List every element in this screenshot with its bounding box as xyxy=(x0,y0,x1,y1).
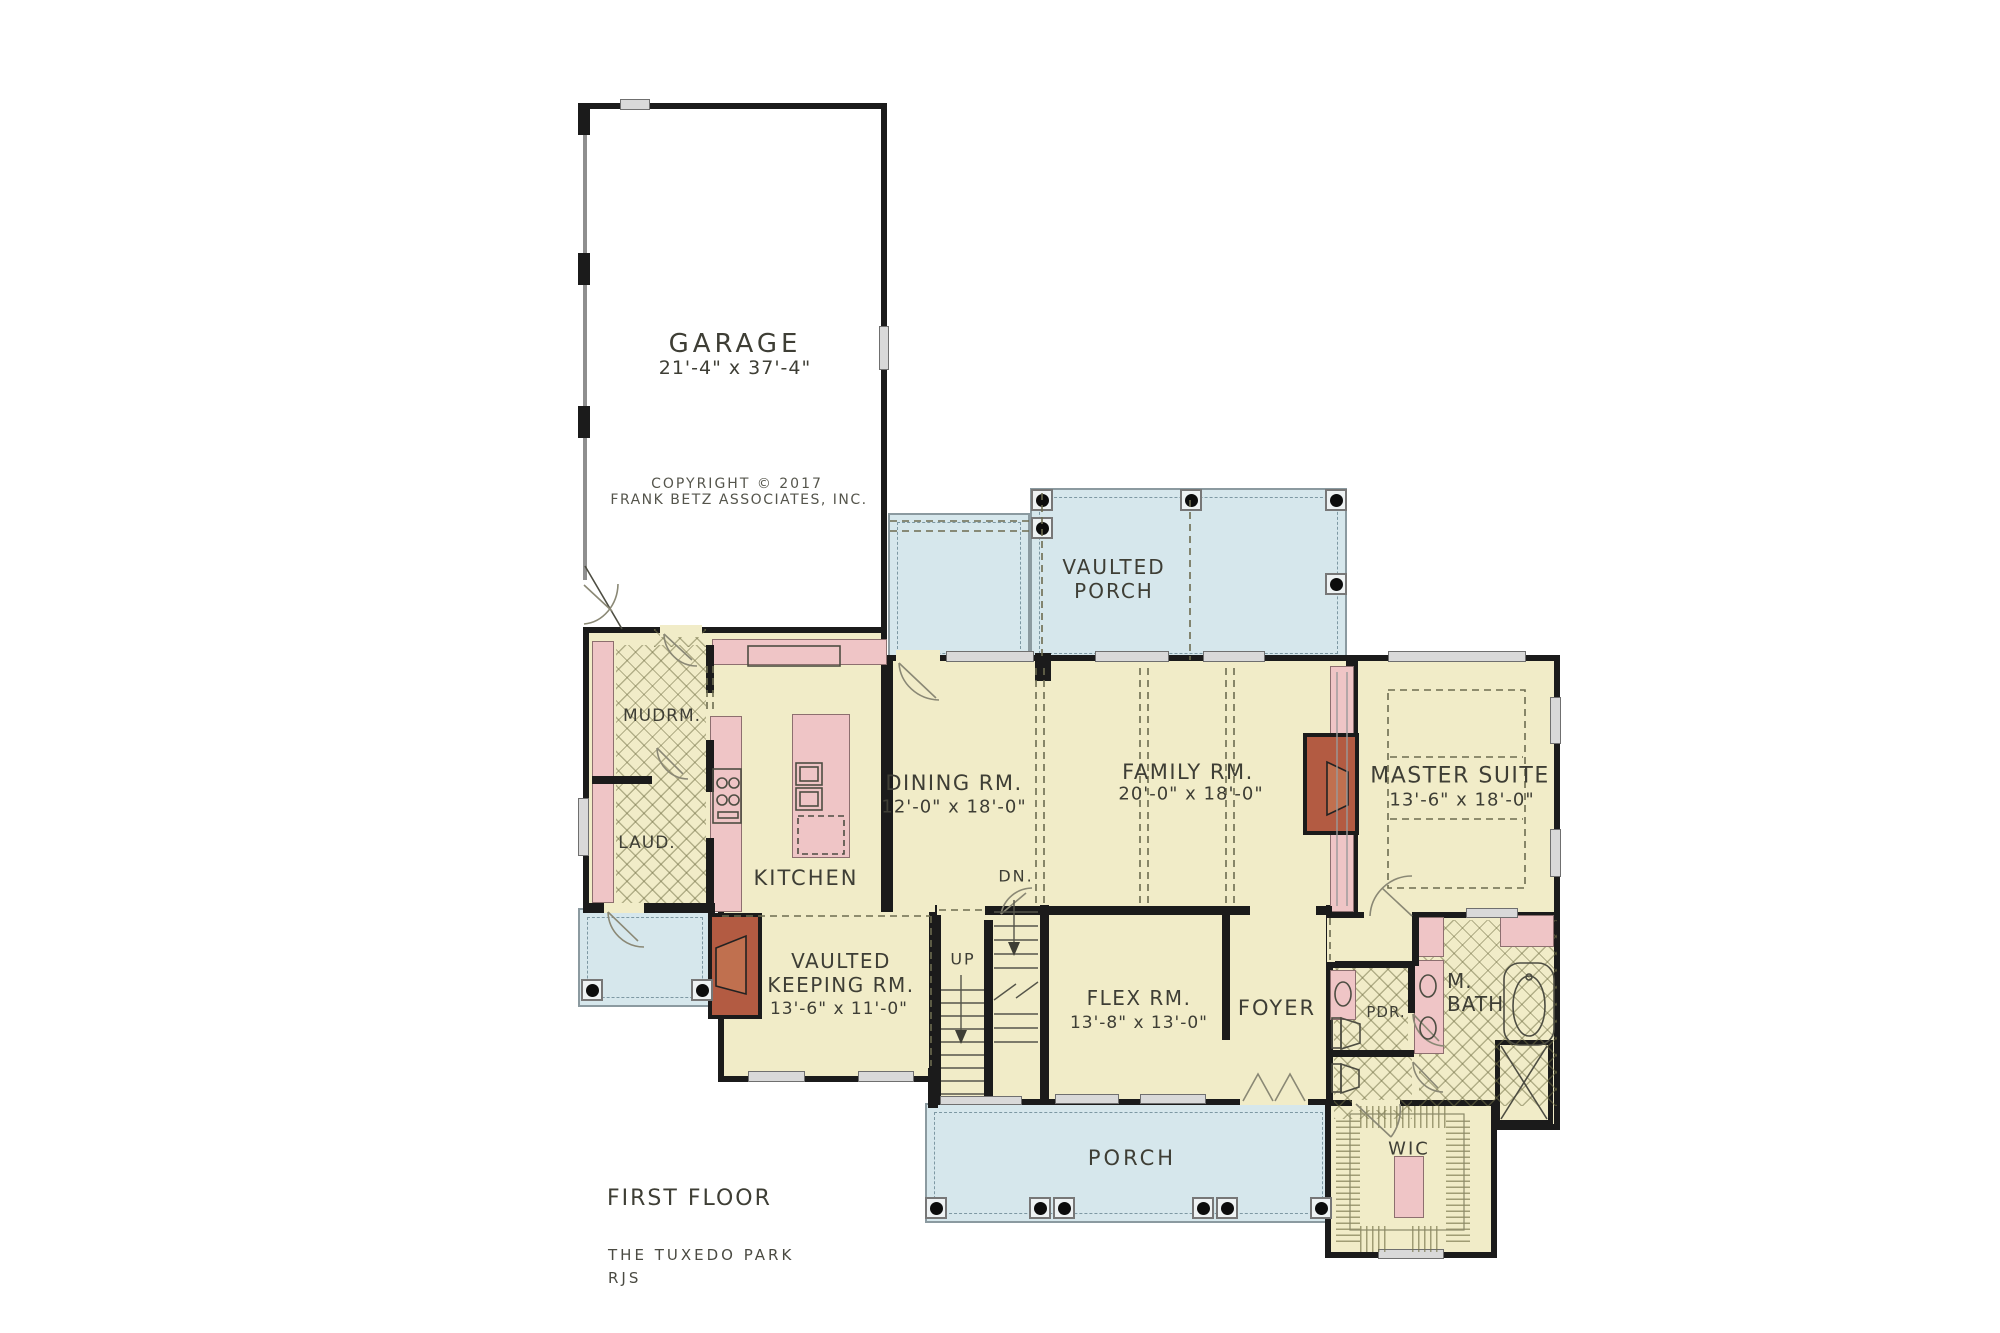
master-bath-label-line2: BATH xyxy=(1447,993,1504,1016)
window xyxy=(1550,697,1561,744)
bath-vanity-top-right xyxy=(1500,915,1554,947)
closet-rod-hatch xyxy=(1446,1116,1470,1242)
porch-column xyxy=(925,1197,947,1219)
wic-label: WIC xyxy=(1388,1139,1430,1160)
first-floor-label: FIRST FLOOR xyxy=(607,1186,772,1211)
vaulted-porch-label-line2: PORCH xyxy=(1074,579,1154,603)
window xyxy=(1055,1094,1119,1104)
porch-column xyxy=(691,979,713,1001)
porch-column xyxy=(1180,489,1202,511)
door-opening xyxy=(660,625,702,637)
copyright-line1: COPYRIGHT © 2017 xyxy=(651,476,823,492)
window xyxy=(578,798,589,856)
powder-label: PDR. xyxy=(1366,1003,1405,1021)
closet-rod-hatch xyxy=(1336,1116,1360,1242)
closet-rod-hatch xyxy=(1360,1106,1446,1128)
master-suite-label: MASTER SUITE xyxy=(1370,764,1550,789)
cased-opening xyxy=(1327,918,1335,962)
wall-segment xyxy=(1040,905,1049,1105)
closet-rod-hatch xyxy=(1412,1226,1440,1252)
porch-column xyxy=(581,979,603,1001)
keeping-dims: 13'-6" x 11'-0" xyxy=(770,999,908,1019)
dining-label: DINING RM. xyxy=(885,771,1022,795)
wall-segment xyxy=(1035,653,1051,681)
garage-left-wall-segment xyxy=(578,253,590,285)
wall-segment xyxy=(1222,912,1230,1040)
porch-column xyxy=(1325,489,1347,511)
window xyxy=(879,326,889,370)
kitchen-label: KITCHEN xyxy=(754,866,859,890)
wall-segment xyxy=(583,903,715,913)
window xyxy=(1095,651,1169,662)
kitchen-left-counter xyxy=(710,716,742,912)
porch-dashed-border xyxy=(587,917,703,998)
keeping-label-line2: KEEPING RM. xyxy=(767,973,914,997)
wic-island xyxy=(1394,1156,1424,1218)
wall-segment xyxy=(592,776,652,784)
window xyxy=(748,1071,805,1082)
master-bath-label: M. BATH xyxy=(1447,970,1504,1016)
family-dims: 20'-0" x 18'-0" xyxy=(1118,784,1263,805)
window xyxy=(620,99,650,110)
window xyxy=(1466,908,1518,918)
kitchen-island xyxy=(792,714,850,858)
window xyxy=(1203,651,1265,662)
master-bath-label-line1: M. xyxy=(1447,970,1504,993)
door-opening xyxy=(896,650,940,662)
porch-column xyxy=(1031,517,1053,539)
porch-column xyxy=(1031,489,1053,511)
foyer-label: FOYER xyxy=(1238,996,1316,1020)
front-door-opening xyxy=(1240,1094,1308,1105)
window xyxy=(1140,1094,1206,1104)
drafter-initials-label: RJS xyxy=(608,1269,641,1287)
wall-segment xyxy=(706,838,714,912)
dining-dims: 12'-0" x 18'-0" xyxy=(881,797,1026,818)
porch-dashed-border xyxy=(897,522,1021,654)
window xyxy=(946,651,1034,662)
left-wall-band xyxy=(592,641,614,903)
wall-segment xyxy=(1332,961,1414,968)
family-label: FAMILY RM. xyxy=(1122,760,1254,784)
mudroom-hall-tile-floor xyxy=(616,645,706,905)
porch-column xyxy=(1325,573,1347,595)
wall-segment xyxy=(1408,961,1415,1013)
family-room-fireplace xyxy=(1303,733,1359,835)
garage-door-opening xyxy=(579,580,591,627)
laundry-label: LAUD. xyxy=(618,833,675,853)
wall-segment xyxy=(984,920,993,1102)
floor-plan-canvas: GARAGE 21'-4" x 37'-4" COPYRIGHT © 2017 … xyxy=(0,0,2000,1333)
vaulted-porch-label-line1: VAULTED xyxy=(1062,555,1165,579)
bath-vanity xyxy=(1414,960,1444,1054)
garage-left-wall-segment xyxy=(578,103,590,135)
mudroom-label: MUDRM. xyxy=(623,706,701,726)
window xyxy=(1388,651,1526,662)
wall-segment xyxy=(1412,916,1419,966)
porch-column xyxy=(1029,1197,1051,1219)
keeping-room-fireplace xyxy=(708,913,762,1019)
closet-rod-hatch xyxy=(1360,1226,1388,1252)
wall-segment xyxy=(706,645,714,693)
flex-label: FLEX RM. xyxy=(1087,986,1192,1010)
wall-segment xyxy=(706,740,714,792)
window xyxy=(858,1071,914,1082)
window xyxy=(940,1096,1022,1105)
powder-sink-cabinet xyxy=(1330,970,1356,1020)
stairs-up-label: UP xyxy=(950,950,975,969)
porch-label: PORCH xyxy=(1088,1146,1176,1170)
plan-name-label: THE TUXEDO PARK xyxy=(608,1246,794,1264)
door-opening xyxy=(604,903,644,913)
door-opening xyxy=(1364,909,1412,921)
porch-column xyxy=(1216,1197,1238,1219)
keeping-label-line1: VAULTED xyxy=(791,949,891,973)
flex-dims: 13'-8" x 13'-0" xyxy=(1070,1013,1208,1033)
vaulted-porch-area-left xyxy=(888,513,1030,663)
bath-cabinet-small xyxy=(1416,917,1444,957)
garage-dims: 21'-4" x 37'-4" xyxy=(659,357,812,379)
opening xyxy=(937,905,985,915)
cased-opening xyxy=(1250,905,1316,915)
porch-column xyxy=(1310,1197,1332,1219)
wall-segment xyxy=(1332,1050,1414,1057)
garage-label: GARAGE xyxy=(669,329,802,359)
window xyxy=(1550,829,1561,877)
porch-column xyxy=(1192,1197,1214,1219)
copyright-line2: FRANK BETZ ASSOCIATES, INC. xyxy=(610,492,867,508)
wall-segment xyxy=(928,1068,938,1108)
kitchen-top-counter xyxy=(712,639,887,665)
garage-left-wall-segment xyxy=(578,406,590,438)
master-suite-dims: 13'-6" x 18'-0" xyxy=(1389,790,1534,811)
porch-column xyxy=(1053,1197,1075,1219)
stairs-down-label: DN. xyxy=(998,867,1033,886)
